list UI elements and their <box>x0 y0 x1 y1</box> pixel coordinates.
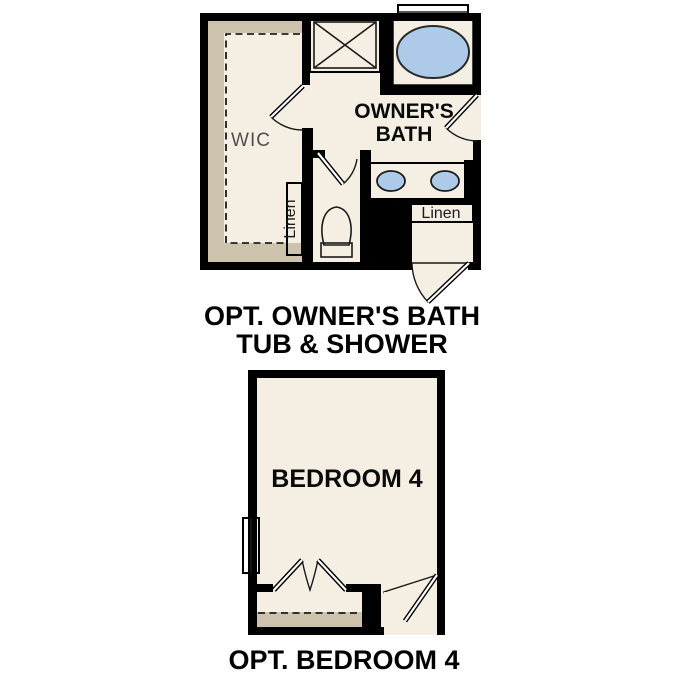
tub-basin <box>397 26 469 78</box>
owners-bath-label-line1: OWNER'S <box>354 100 454 123</box>
floorplan-canvas: Linen Linen <box>0 0 687 687</box>
bedroom4-plan: BEDROOM 4 <box>243 370 445 635</box>
bedroom4-room-label: BEDROOM 4 <box>271 465 423 493</box>
owners-bath-caption-line2: TUB & SHOWER <box>236 329 448 359</box>
hall-linen-text: Linen <box>421 205 460 222</box>
bedroom4-caption: OPT. BEDROOM 4 <box>228 645 459 675</box>
owners-bath-label-line2: BATH <box>376 123 433 146</box>
owners-bath-caption-line1: OPT. OWNER'S BATH <box>204 301 480 331</box>
wic-room-label: WIC <box>231 130 271 151</box>
sink-right <box>431 171 459 191</box>
floorplan-page: Linen Linen <box>0 0 687 687</box>
closet-shelf <box>257 612 363 627</box>
wic-linen-text: Linen <box>282 199 299 238</box>
owners-bath-plan: Linen Linen <box>200 5 481 302</box>
sink-left <box>377 171 405 191</box>
